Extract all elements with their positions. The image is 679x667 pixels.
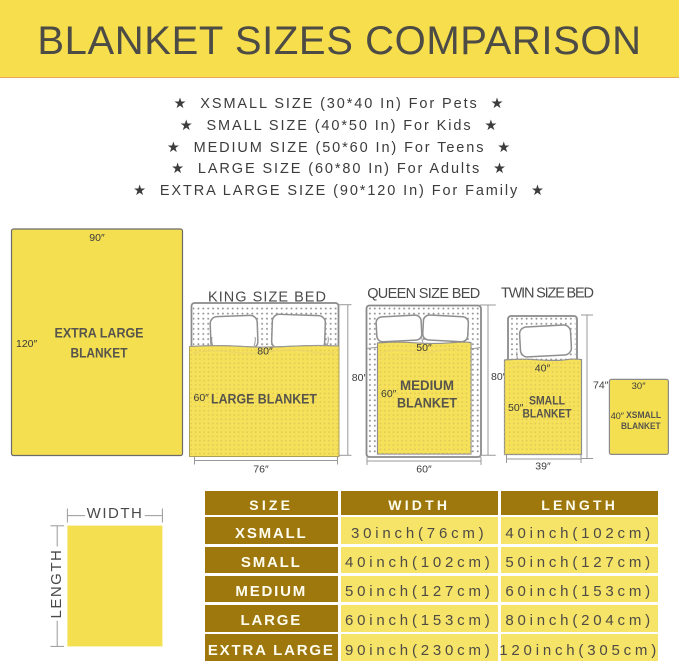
svg-text:74″: 74″ [593, 380, 609, 392]
svg-text:WIDTH: WIDTH [87, 505, 144, 522]
svg-text:80″: 80″ [352, 372, 368, 384]
svg-text:60″: 60″ [194, 392, 210, 404]
svg-text:LARGE BLANKET: LARGE BLANKET [211, 392, 318, 407]
svg-text:BLANKET: BLANKET [523, 409, 572, 421]
svg-text:76″: 76″ [253, 463, 269, 475]
svg-text:TWIN SIZE BED: TWIN SIZE BED [501, 286, 594, 302]
svg-text:40″: 40″ [535, 362, 551, 374]
svg-text:EXTRA LARGE: EXTRA LARGE [55, 325, 144, 341]
svg-text:50″: 50″ [416, 342, 432, 354]
svg-text:50″: 50″ [508, 402, 524, 414]
svg-text:MEDIUM: MEDIUM [400, 378, 454, 393]
svg-text:60″: 60″ [416, 463, 432, 475]
svg-text:60″: 60″ [381, 388, 397, 400]
svg-text:BLANKET: BLANKET [397, 395, 458, 410]
svg-text:QUEEN SIZE BED: QUEEN SIZE BED [367, 286, 480, 302]
svg-text:80″: 80″ [257, 345, 273, 357]
svg-text:90″: 90″ [89, 232, 105, 244]
svg-text:BLANKET: BLANKET [71, 344, 128, 360]
svg-text:XSMALL: XSMALL [626, 410, 661, 421]
svg-text:40″: 40″ [611, 411, 625, 421]
svg-text:30″: 30″ [632, 381, 647, 392]
svg-text:BLANKET: BLANKET [621, 421, 661, 432]
svg-text:120″: 120″ [16, 338, 38, 350]
svg-text:LENGTH: LENGTH [48, 549, 65, 619]
svg-text:39″: 39″ [535, 460, 551, 472]
svg-text:SMALL: SMALL [529, 396, 565, 408]
